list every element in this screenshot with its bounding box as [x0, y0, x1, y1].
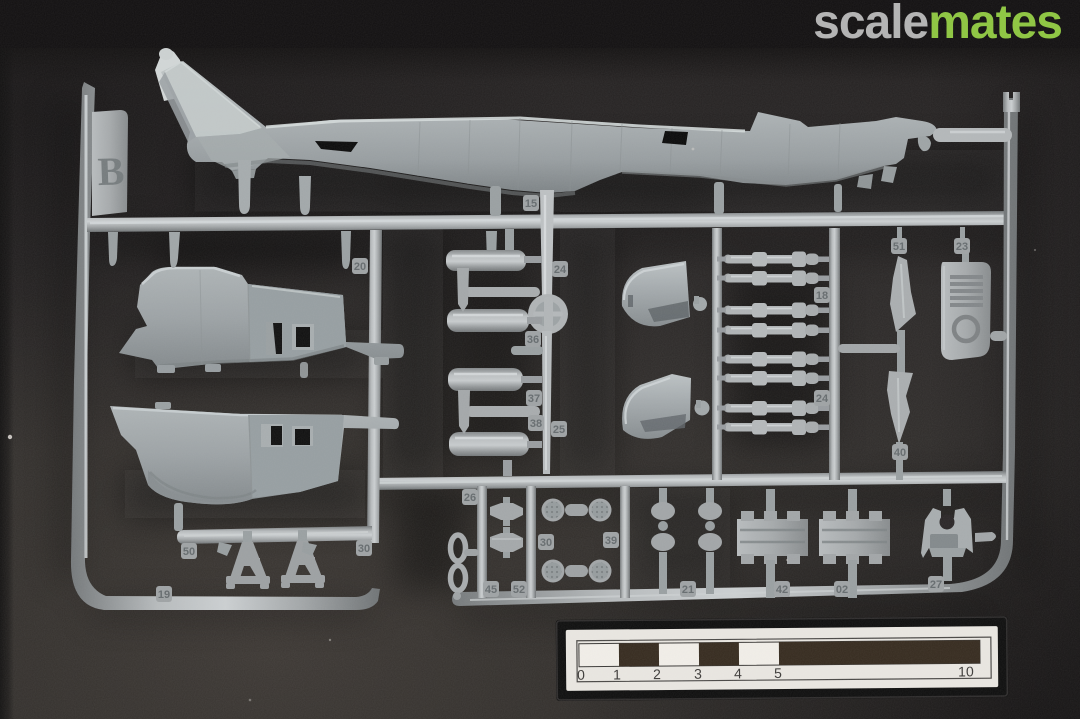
svg-text:scalemates: scalemates	[813, 0, 1062, 49]
